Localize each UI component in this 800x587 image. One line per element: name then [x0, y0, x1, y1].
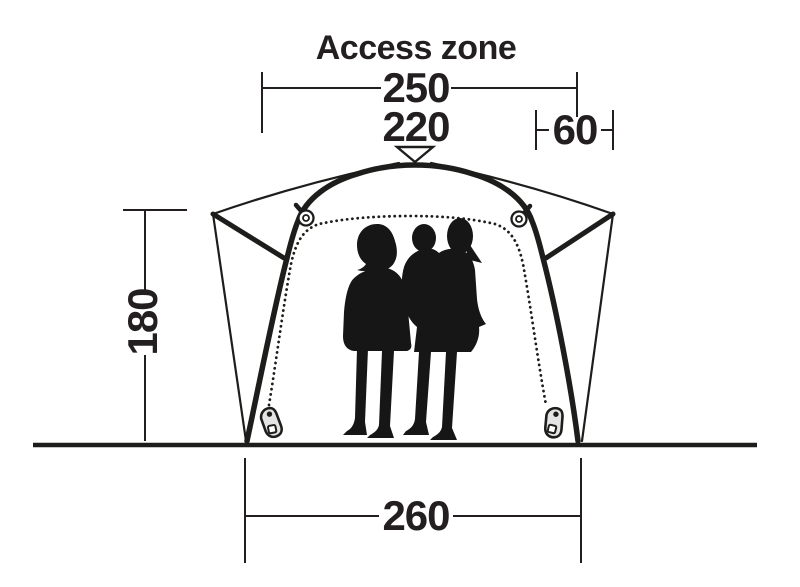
silhouette-adult-right-leg	[403, 352, 431, 435]
dimension-60: 60	[536, 106, 613, 153]
peak-marker-icon	[397, 147, 433, 162]
silhouette-child-head	[412, 224, 436, 252]
ring-toggle-icon	[299, 211, 314, 226]
ring-toggle-icon	[512, 212, 527, 227]
guy-line-left	[213, 214, 246, 441]
zipper-pull-slot	[268, 425, 277, 434]
dimension-260: 260	[245, 458, 581, 563]
wing-strut-left	[213, 214, 284, 258]
family-silhouette	[343, 218, 486, 440]
dimension-label-220: 220	[382, 103, 449, 150]
tent-dimension-diagram: Access zone 250 220 60 180	[0, 0, 800, 587]
zipper-pull-slot	[547, 424, 556, 433]
wing-strut-right	[546, 214, 613, 258]
silhouette-adult-left-leg	[367, 351, 394, 438]
guy-line-right	[582, 214, 613, 441]
diagram-canvas: Access zone 250 220 60 180	[0, 0, 800, 587]
dimension-label-180: 180	[119, 288, 166, 355]
silhouette-adult-left-head	[357, 224, 397, 271]
dimension-180: 180	[119, 210, 187, 441]
silhouette-adult-right-leg	[430, 352, 457, 440]
dimension-label-260: 260	[382, 492, 449, 539]
diagram-title: Access zone	[316, 29, 517, 67]
dimension-220: 220	[382, 103, 449, 162]
silhouette-adult-left-leg	[343, 349, 368, 435]
dimension-label-60: 60	[553, 106, 598, 153]
silhouette-adult-left-torso	[343, 267, 411, 351]
zipper-pull-left	[259, 406, 282, 438]
zipper-pull-right	[542, 406, 567, 439]
silhouette-adult-right-torso	[402, 248, 486, 352]
